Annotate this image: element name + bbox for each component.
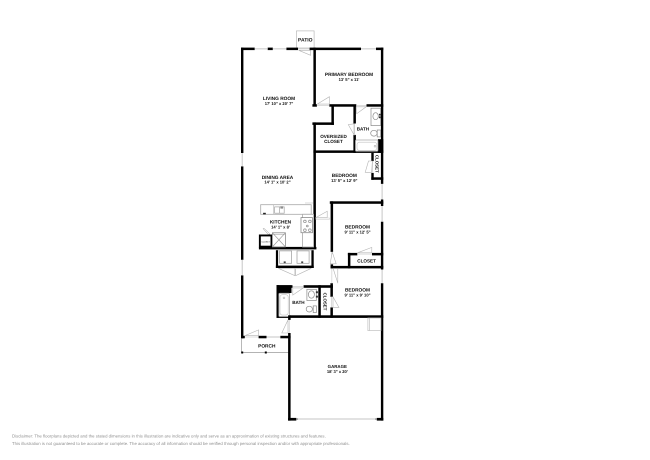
svg-text:13' 5" x 12' 9": 13' 5" x 12' 9" <box>331 178 357 183</box>
svg-text:CLOSET: CLOSET <box>324 139 343 144</box>
svg-text:BATH: BATH <box>292 300 305 305</box>
svg-text:13' 5" x 11': 13' 5" x 11' <box>339 77 360 82</box>
svg-text:PATIO: PATIO <box>298 37 313 43</box>
svg-text:18' 3" x 20': 18' 3" x 20' <box>327 369 348 374</box>
svg-text:14' 1" x 8': 14' 1" x 8' <box>271 224 290 229</box>
svg-text:CLOSET: CLOSET <box>323 293 328 311</box>
svg-text:17' 10" x 20' 7": 17' 10" x 20' 7" <box>265 101 294 106</box>
svg-text:PORCH: PORCH <box>258 344 276 350</box>
svg-text:Disclaimer: The floorplans dep: Disclaimer: The floorplans depicted and … <box>12 434 326 439</box>
svg-text:CLOSET: CLOSET <box>375 155 380 173</box>
svg-text:14' 1" x 10' 2": 14' 1" x 10' 2" <box>264 180 290 185</box>
svg-text:9' 11" x 9' 10": 9' 11" x 9' 10" <box>344 293 370 298</box>
svg-text:9' 11" x 12' 5": 9' 11" x 12' 5" <box>344 230 370 235</box>
svg-text:BATH: BATH <box>357 126 370 131</box>
svg-text:CLOSET: CLOSET <box>261 241 270 244</box>
svg-text:CLOSET: CLOSET <box>357 259 376 264</box>
svg-text:This illustration is not guara: This illustration is not guaranteed to b… <box>12 441 350 446</box>
